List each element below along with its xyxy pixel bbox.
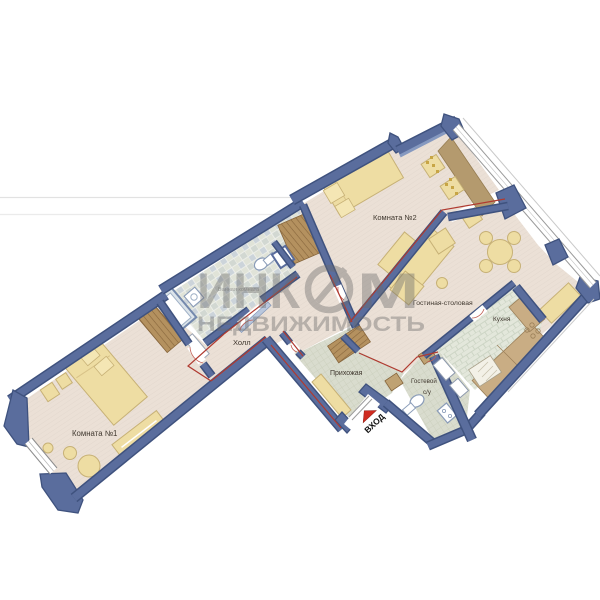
svg-text:Прихожая: Прихожая [330, 370, 363, 377]
svg-text:Гостиная-столовая: Гостиная-столовая [413, 300, 473, 307]
svg-text:Комната №1: Комната №1 [72, 429, 117, 438]
svg-text:Кухня: Кухня [493, 316, 511, 323]
svg-text:Гостевой: Гостевой [411, 378, 437, 385]
svg-text:с/у: с/у [423, 389, 432, 396]
svg-text:ИНК: ИНК [197, 263, 300, 319]
svg-text:М: М [357, 263, 419, 319]
svg-text:Комната №2: Комната №2 [373, 213, 417, 222]
svg-text:НЕДВИЖИМОСТЬ: НЕДВИЖИМОСТЬ [197, 312, 425, 336]
svg-text:Холл: Холл [233, 338, 251, 347]
